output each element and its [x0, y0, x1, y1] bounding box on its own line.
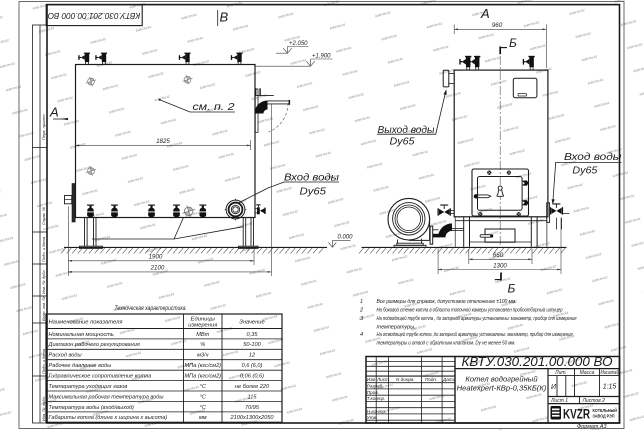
- svg-text:1:15: 1:15: [603, 384, 617, 391]
- svg-text:МВт: МВт: [196, 332, 209, 338]
- svg-text:КВТУ.030.201.00.000 ВО: КВТУ.030.201.00.000 ВО: [47, 11, 140, 20]
- svg-text:Справ. №: Справ. №: [41, 206, 46, 225]
- svg-text:0,35: 0,35: [247, 332, 259, 338]
- svg-text:12: 12: [249, 353, 256, 359]
- svg-text:Наименование показателя: Наименование показателя: [49, 320, 123, 326]
- svg-text:На отводящей трубе котла ,до з: На отводящей трубе котла ,до запорной ар…: [377, 331, 573, 338]
- svg-text:Листов 2: Листов 2: [582, 398, 606, 404]
- svg-text:%: %: [200, 342, 205, 348]
- svg-text:Dy65: Dy65: [390, 135, 415, 147]
- svg-text:А: А: [49, 105, 59, 120]
- svg-text:На боковой стенке котла в обла: На боковой стенке котла в области топочн…: [377, 306, 563, 313]
- svg-text:2100х1300х2050: 2100х1300х2050: [230, 415, 275, 421]
- svg-text:Лит.: Лит.: [554, 370, 567, 376]
- svg-text:+2.050: +2.050: [289, 41, 308, 47]
- svg-text:На подводящей трубе котла , д: На подводящей трубе котла , до запорной …: [377, 315, 577, 322]
- svg-text:Котел водогрейный: Котел водогрейный: [465, 375, 538, 384]
- svg-text:Пров.: Пров.: [367, 390, 379, 395]
- svg-text:Лист: Лист: [376, 377, 389, 382]
- svg-text:ЗАВОД РЭП: ЗАВОД РЭП: [593, 414, 615, 419]
- svg-text:0,6 (6,0): 0,6 (6,0): [242, 363, 263, 369]
- svg-text:КВТУ.030.201.00.000 ВО: КВТУ.030.201.00.000 ВО: [462, 355, 613, 369]
- svg-text:Все размеры для справок, допус: Все размеры для справок, допустимое откл…: [377, 299, 517, 305]
- svg-text:м3/ч: м3/ч: [197, 353, 208, 359]
- svg-text:4: 4: [360, 332, 363, 338]
- svg-text:В: В: [220, 10, 229, 25]
- svg-text:°С: °С: [200, 384, 207, 390]
- svg-text:1300: 1300: [493, 262, 507, 269]
- svg-text:Гидравлическое сопротивление к: Гидравлическое сопротивление котла: [49, 374, 152, 380]
- svg-text:Номинальная мощность: Номинальная мощность: [49, 332, 114, 338]
- svg-text:Значение: Значение: [239, 320, 265, 326]
- svg-text:Т.контр.: Т.контр.: [367, 396, 386, 401]
- svg-text:660: 660: [493, 252, 504, 259]
- svg-text:Максимальная рабочая температу: Максимальная рабочая температура воды: [49, 394, 164, 400]
- svg-text:115: 115: [248, 394, 258, 400]
- svg-text:Утв.: Утв.: [367, 415, 377, 420]
- svg-text:Подп. и дата: Подп. и дата: [41, 236, 46, 262]
- svg-text:мм: мм: [199, 415, 207, 421]
- svg-text:см. п. 2: см. п. 2: [193, 101, 235, 113]
- svg-text:Диапазон рабочего регулировани: Диапазон рабочего регулирования: [48, 342, 140, 348]
- svg-text:Формат А3: Формат А3: [577, 424, 607, 430]
- svg-text:1825: 1825: [156, 138, 170, 145]
- svg-text:Дата: Дата: [442, 377, 456, 382]
- svg-text:1900: 1900: [149, 254, 163, 261]
- svg-text:N докум.: N докум.: [396, 377, 415, 382]
- svg-text:°С: °С: [200, 394, 207, 400]
- svg-text:+1.900: +1.900: [312, 54, 331, 60]
- svg-text:КОТЕЛЬНЫЙ: КОТЕЛЬНЫЙ: [593, 408, 618, 413]
- svg-text:Температура воды (вход/выход): Температура воды (вход/выход): [49, 405, 135, 411]
- svg-text:Вход воды: Вход воды: [564, 151, 622, 163]
- svg-text:KVZR: KVZR: [563, 406, 590, 421]
- svg-text:Heatexpert-КВр-0,35КБ(К): Heatexpert-КВр-0,35КБ(К): [457, 384, 547, 393]
- svg-text:температуры и отвод с обратным: температуры и отвод с обратным клапаном.…: [377, 340, 516, 346]
- svg-text:2100: 2100: [150, 265, 165, 272]
- svg-text:960: 960: [492, 22, 503, 29]
- svg-text:Dy65: Dy65: [572, 165, 597, 177]
- svg-text:Разраб.: Разраб.: [367, 384, 384, 389]
- svg-text:Dy65: Dy65: [300, 187, 327, 198]
- svg-text:Лист 1: Лист 1: [550, 398, 568, 404]
- svg-text:70/95: 70/95: [245, 405, 260, 411]
- svg-text:Температура уходящих газов: Температура уходящих газов: [49, 384, 128, 390]
- svg-text:Масштаб: Масштаб: [601, 370, 619, 376]
- svg-text:°С: °С: [200, 405, 207, 411]
- svg-text:Подп.: Подп.: [425, 377, 437, 382]
- svg-text:50-100: 50-100: [243, 342, 261, 348]
- svg-text:А: А: [480, 6, 490, 21]
- svg-text:температуры.: температуры.: [377, 324, 416, 330]
- svg-text:Инв. № подл.: Инв. № подл.: [41, 396, 46, 421]
- svg-text:Б: Б: [508, 282, 516, 296]
- svg-text:МПа (кгс/см2): МПа (кгс/см2): [185, 374, 222, 380]
- svg-text:Изм: Изм: [367, 377, 376, 382]
- svg-text:1: 1: [360, 299, 363, 305]
- svg-text:Техническая характеристика: Техническая характеристика: [115, 305, 186, 312]
- svg-text:Габариты котла (длина х ширина: Габариты котла (длина х ширина х высота): [49, 415, 168, 421]
- svg-text:Перв. примен.: Перв. примен.: [41, 113, 46, 140]
- svg-text:0,06 (0,6): 0,06 (0,6): [240, 374, 264, 380]
- svg-text:0.000: 0.000: [338, 235, 354, 241]
- svg-text:Подп. и дата: Подп. и дата: [41, 348, 46, 374]
- svg-text:Н.контр.: Н.контр.: [367, 409, 386, 414]
- svg-text:Инв. № дубл.: Инв. № дубл.: [41, 269, 46, 294]
- svg-text:Б: Б: [509, 36, 517, 50]
- svg-text:Рабочее давление воды: Рабочее давление воды: [49, 363, 112, 369]
- svg-text:МПа (кгс/см2): МПа (кгс/см2): [185, 363, 222, 369]
- svg-text:Взам. инв. №: Взам. инв. №: [41, 296, 46, 321]
- svg-text:Масса: Масса: [580, 370, 595, 376]
- svg-text:не более 220: не более 220: [235, 384, 270, 390]
- svg-text:измерения: измерения: [188, 323, 217, 329]
- svg-text:Расход воды: Расход воды: [49, 353, 82, 359]
